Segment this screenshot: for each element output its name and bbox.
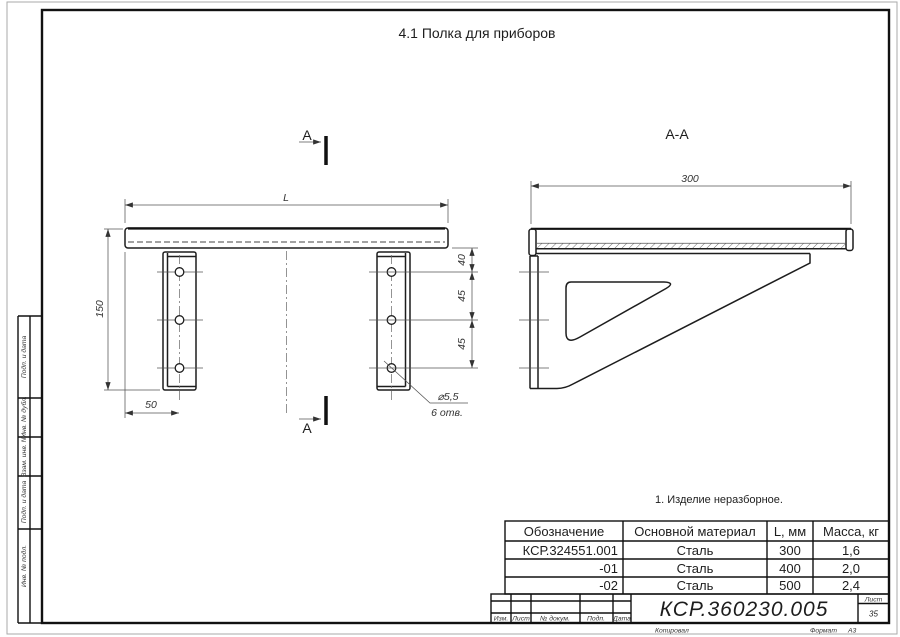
left-bracket xyxy=(157,252,203,403)
margin-stamp: Подп. и дата Инв. № дубл. Взам. инв. № П… xyxy=(18,316,42,623)
tb-sheet-label: Лист xyxy=(864,597,883,604)
section-letter-bottom: А xyxy=(302,420,312,436)
dim-chain-45b: 45 xyxy=(456,338,468,350)
section-letter-top: А xyxy=(302,127,312,143)
tb-col-podp: Подп. xyxy=(587,615,605,623)
table-row: -01 Сталь 400 2,0 xyxy=(599,561,860,576)
cell-material: Сталь xyxy=(677,543,714,558)
table-row: -02 Сталь 500 2,4 xyxy=(599,578,860,593)
hole-dia-label: ⌀5,5 xyxy=(438,391,459,403)
drawing-canvas: Подп. и дата Инв. № дубл. Взам. инв. № П… xyxy=(0,0,900,637)
margin-label-5: Инв. № подл. xyxy=(20,545,28,587)
margin-label-3: Взам. инв. № xyxy=(21,435,28,477)
col-header-material: Основной материал xyxy=(634,524,755,539)
dim-length-label: L xyxy=(283,192,289,204)
cell-designation: КСР.324551.001 xyxy=(523,543,618,558)
col-header-mass: Масса, кг xyxy=(823,524,879,539)
hole xyxy=(175,364,184,373)
sheet-frame xyxy=(42,10,889,623)
footer-format-value: А3 xyxy=(847,628,857,635)
dim-offset-label: 50 xyxy=(145,399,157,411)
dim-chain-40: 40 xyxy=(456,254,468,266)
margin-label-2: Инв. № дубл. xyxy=(20,396,28,438)
footer-copy: Копировал xyxy=(655,628,689,635)
footer-format-label: Формат xyxy=(810,628,837,635)
hole xyxy=(175,316,184,325)
cell-material: Сталь xyxy=(677,561,714,576)
drawing-title: 4.1 Полка для приборов xyxy=(399,25,556,41)
dim-length: L xyxy=(125,192,448,223)
dim-offset: 50 xyxy=(125,252,179,418)
cell-mass: 1,6 xyxy=(842,543,860,558)
dim-depth-label: 300 xyxy=(681,173,699,185)
note-text: 1. Изделие неразборное. xyxy=(655,494,783,506)
tb-col-dokum: № докум. xyxy=(540,615,570,623)
gusset-cutout xyxy=(566,282,671,340)
document-designation: КСР.360230.005 xyxy=(660,598,829,621)
margin-label-4: Подп. и дата xyxy=(20,481,28,524)
section-cut-marks: А А xyxy=(299,127,326,436)
drawing-sheet: Подп. и дата Инв. № дубл. Взам. инв. № П… xyxy=(0,0,900,637)
spec-table: Обозначение Основной материал L, мм Масс… xyxy=(505,521,889,594)
dim-chain-45a: 45 xyxy=(456,290,468,302)
tb-col-data: Дата xyxy=(612,616,631,623)
dim-depth: 300 xyxy=(531,173,851,224)
table-row: КСР.324551.001 Сталь 300 1,6 xyxy=(523,543,860,558)
dim-height: 150 xyxy=(94,229,160,390)
col-header-designation: Обозначение xyxy=(524,524,604,539)
hole xyxy=(175,268,184,277)
section-view: А-А 300 xyxy=(519,126,853,389)
cell-mass: 2,4 xyxy=(842,578,860,593)
cell-length: 300 xyxy=(779,543,801,558)
dim-height-label: 150 xyxy=(94,300,106,318)
sheet-footer: Копировал Формат А3 xyxy=(655,628,857,635)
hole-count-label: 6 отв. xyxy=(431,407,463,419)
front-view: А А L 150 50 xyxy=(94,127,478,436)
sheet-trim-border xyxy=(7,2,897,634)
dim-hole-chain: 40 45 45 xyxy=(369,248,478,368)
col-header-length: L, мм xyxy=(774,524,806,539)
bracket-section xyxy=(519,254,810,389)
cell-mass: 2,0 xyxy=(842,561,860,576)
cell-designation: -02 xyxy=(599,578,618,593)
margin-label-1: Подп. и дата xyxy=(20,336,28,379)
tb-col-list: Лист xyxy=(511,616,530,623)
shelf-section xyxy=(529,229,853,256)
tb-col-izm: Изм. xyxy=(494,616,509,623)
title-block: Изм. Лист № докум. Подп. Дата КСР.360230… xyxy=(491,594,889,623)
tb-sheet-number: 35 xyxy=(869,610,878,619)
cell-length: 400 xyxy=(779,561,801,576)
cell-designation: -01 xyxy=(599,561,618,576)
cell-length: 500 xyxy=(779,578,801,593)
cell-material: Сталь xyxy=(677,578,714,593)
section-view-title: А-А xyxy=(665,126,689,142)
